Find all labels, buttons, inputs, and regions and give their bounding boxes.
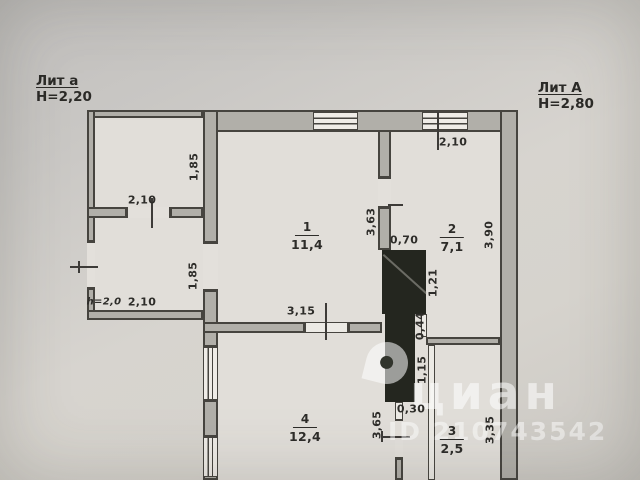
door-opening bbox=[203, 243, 218, 290]
annex-title: Лит а bbox=[36, 74, 92, 90]
watermark-id: ID 210743542 bbox=[388, 419, 607, 444]
dim-chimney-side: 1,21 bbox=[427, 269, 440, 297]
window-icon bbox=[203, 347, 218, 400]
door-opening bbox=[378, 178, 391, 207]
main-title-block: Лит А Н=2,80 bbox=[538, 81, 594, 112]
room-1-label: 1 11,4 bbox=[291, 216, 323, 252]
annex-height: Н=2,20 bbox=[36, 90, 92, 106]
wall bbox=[87, 110, 95, 242]
dim-annex-upper-depth: 1,85 bbox=[188, 153, 201, 181]
room-3-label: 3 2,5 bbox=[440, 420, 464, 456]
wall bbox=[87, 207, 127, 218]
room-2-label: 2 7,1 bbox=[440, 218, 464, 254]
main-height: Н=2,80 bbox=[538, 97, 594, 113]
room-3-number: 3 bbox=[440, 425, 464, 440]
dim-annex-lower-width: 2,10 bbox=[128, 296, 156, 309]
room-3-area: 2,5 bbox=[440, 441, 464, 456]
wall bbox=[348, 322, 382, 333]
wall bbox=[170, 207, 203, 218]
watermark-brand: циан bbox=[410, 370, 562, 417]
cian-pin-dot-icon bbox=[379, 355, 395, 371]
wall bbox=[378, 130, 391, 178]
annex-title-block: Лит а Н=2,20 bbox=[36, 74, 92, 105]
wall bbox=[426, 337, 500, 345]
dim-room2-width: 2,10 bbox=[439, 136, 467, 149]
dim-room1-bottom: 3,15 bbox=[287, 305, 315, 318]
door-opening bbox=[87, 242, 95, 288]
window-icon bbox=[313, 112, 358, 130]
dim-room2-depth: 3,90 bbox=[483, 221, 496, 249]
dimension-tick bbox=[70, 266, 98, 268]
wall bbox=[203, 322, 305, 333]
wall bbox=[203, 400, 218, 437]
room-4-area: 12,4 bbox=[289, 429, 321, 444]
dim-room1-side: 3,63 bbox=[365, 208, 378, 236]
dim-room4-side: 3,65 bbox=[371, 411, 384, 439]
dimension-tick bbox=[388, 204, 403, 206]
window-icon bbox=[203, 437, 218, 477]
floor-plan: циан ID 210743542 Лит а Н=2,20 Лит А Н=2… bbox=[0, 0, 640, 480]
dimension-tick bbox=[78, 261, 80, 273]
dim-chimney-width: 0,70 bbox=[390, 234, 418, 247]
dim-room3-side: 3,35 bbox=[484, 416, 497, 444]
dim-door-opening: 1,15 bbox=[416, 356, 429, 384]
dim-stub-above-door: 0,30 bbox=[397, 403, 425, 416]
room-1-number: 1 bbox=[295, 221, 319, 236]
main-title: Лит А bbox=[538, 81, 594, 97]
wall bbox=[395, 458, 403, 480]
room-4-number: 4 bbox=[293, 413, 317, 428]
window-icon bbox=[422, 112, 468, 130]
wall bbox=[203, 290, 218, 347]
room-2-area: 7,1 bbox=[440, 239, 464, 254]
dimension-tick bbox=[325, 303, 327, 340]
room-1-area: 11,4 bbox=[291, 237, 323, 252]
door-opening bbox=[305, 322, 348, 333]
wall bbox=[203, 110, 518, 132]
wall bbox=[203, 110, 218, 243]
wall bbox=[87, 310, 203, 320]
room-4-label: 4 12,4 bbox=[289, 408, 321, 444]
dim-annex-lower-depth: 1,85 bbox=[187, 262, 200, 290]
wall bbox=[87, 110, 203, 118]
room-2-number: 2 bbox=[440, 223, 464, 238]
dim-annex-ceiling-height: h=2,0 bbox=[87, 297, 122, 308]
door-opening bbox=[127, 207, 170, 218]
dim-annex-upper-width: 2,10 bbox=[128, 194, 156, 207]
dim-stub-below-chimney: 0,44 bbox=[414, 312, 427, 340]
